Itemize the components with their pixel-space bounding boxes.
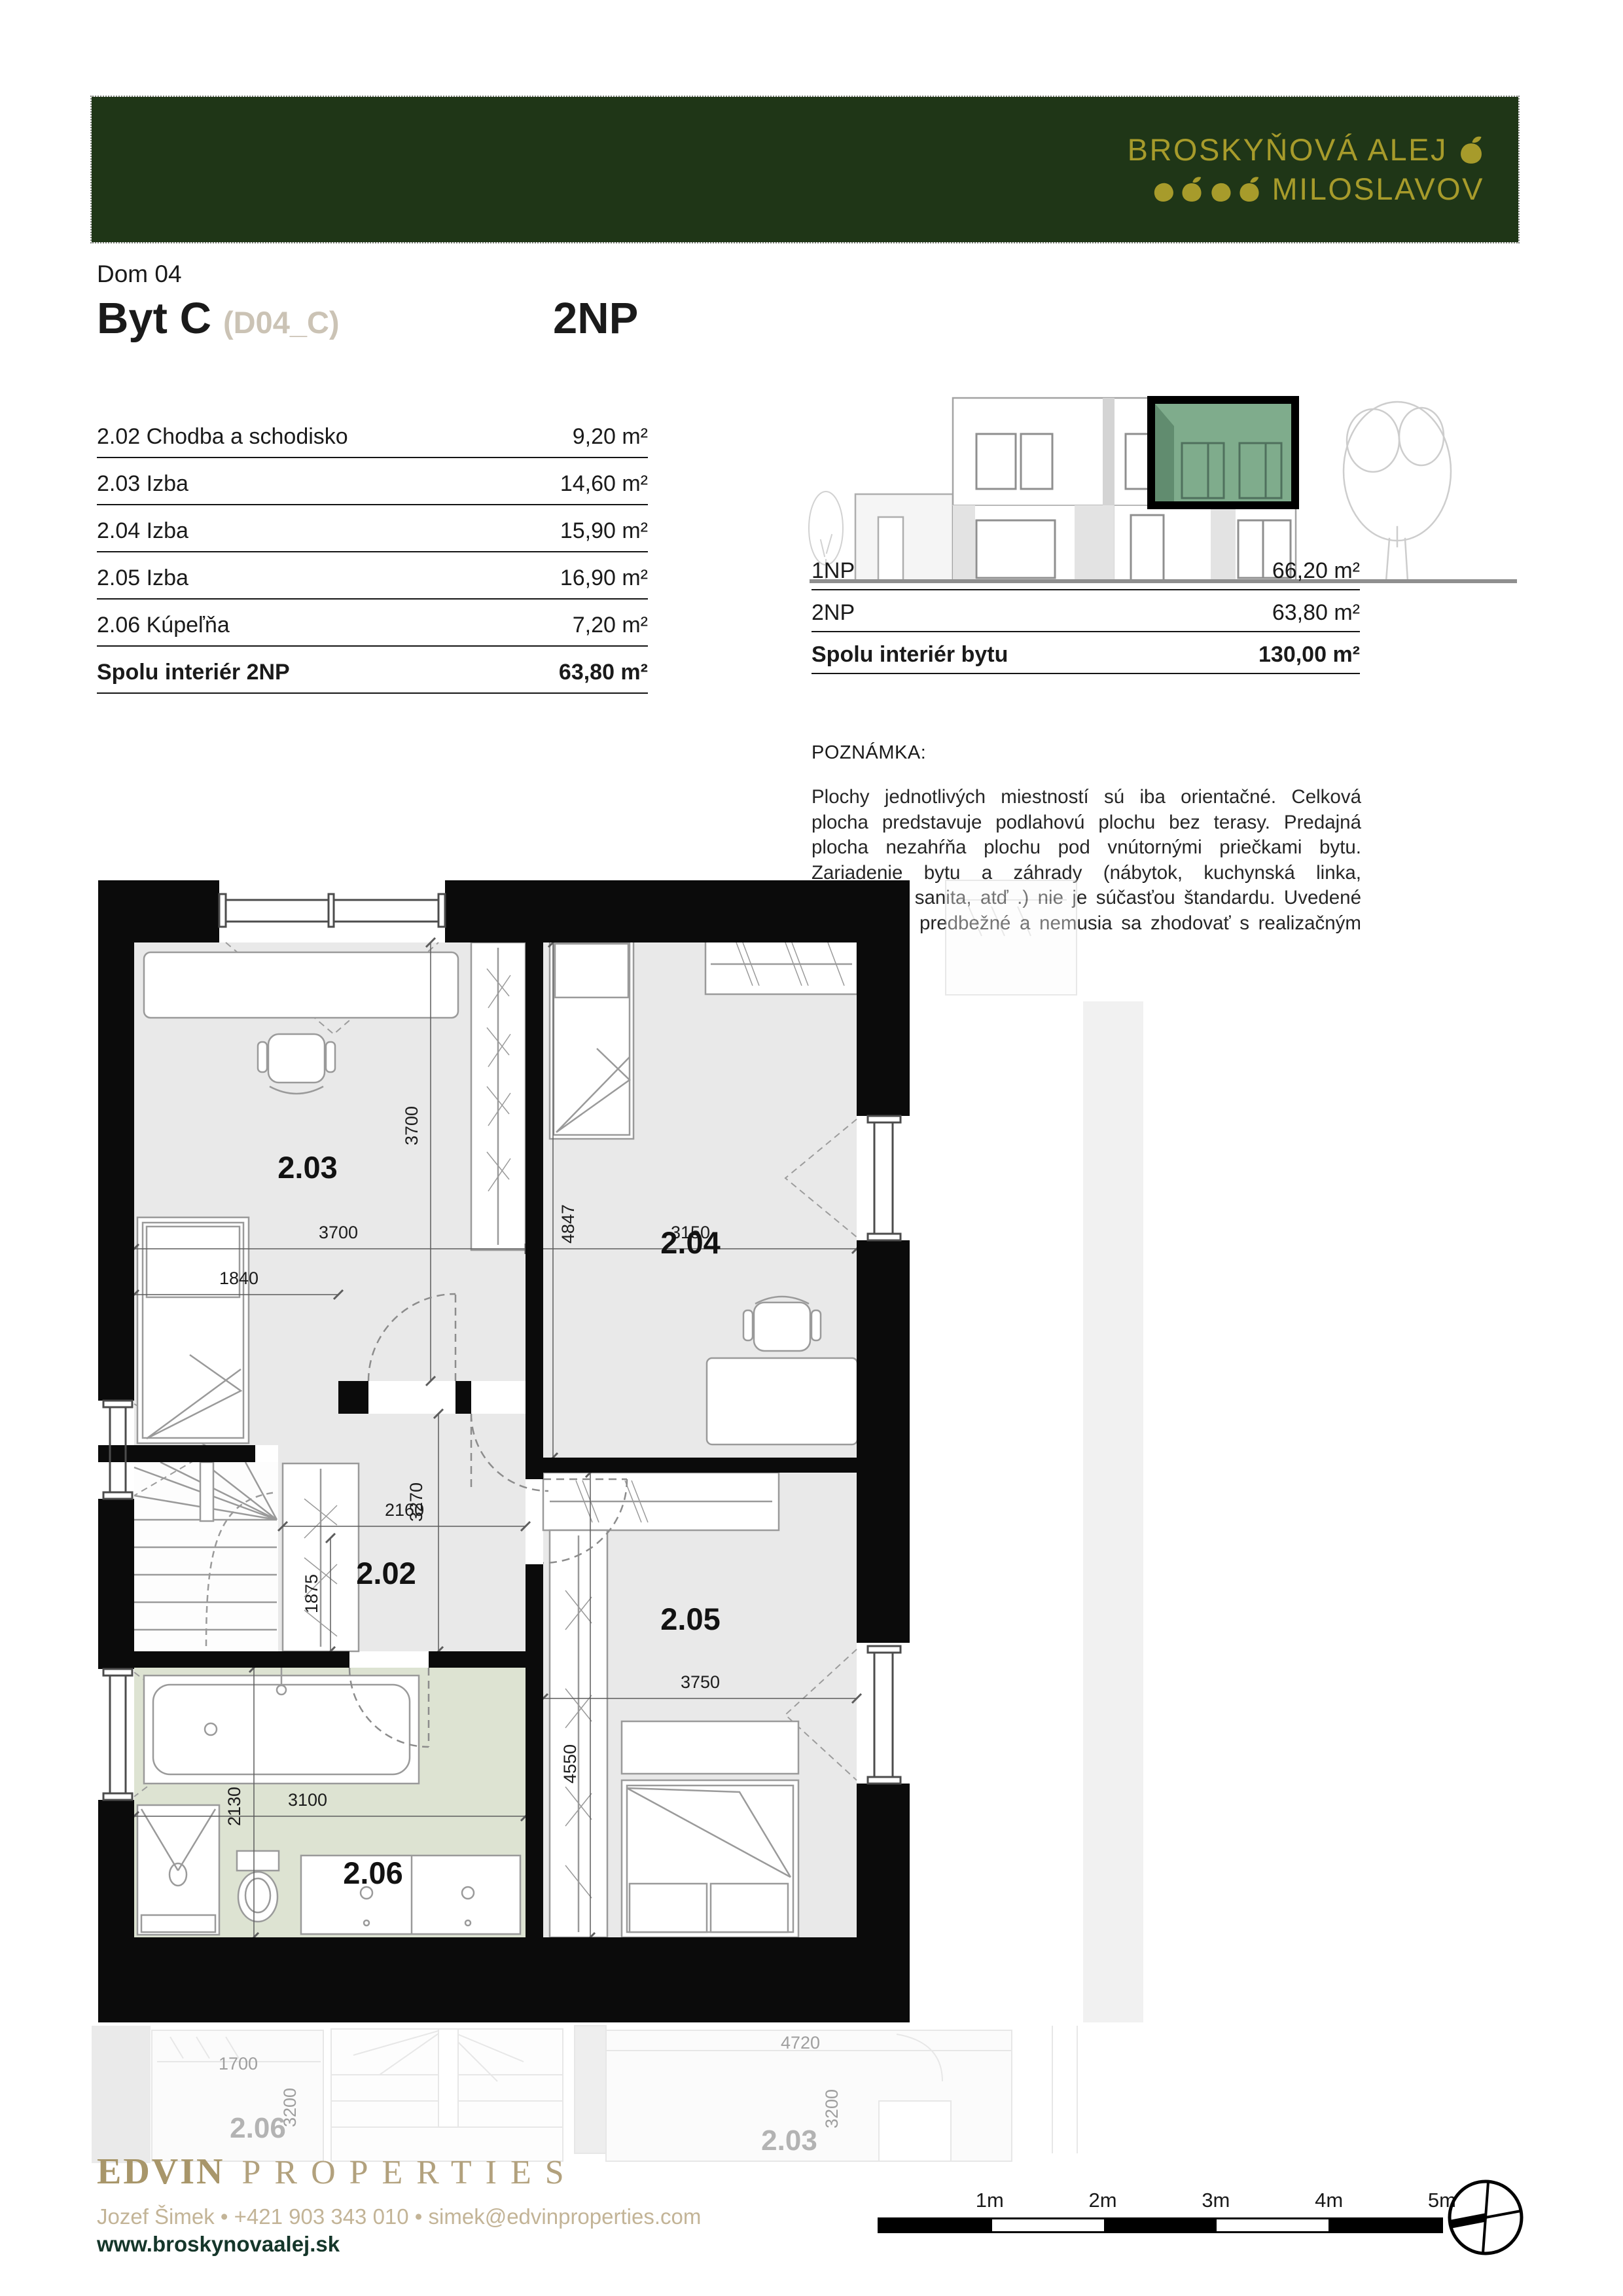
- room-number: 2.04: [660, 1225, 720, 1260]
- website-link[interactable]: www.broskynovaalej.sk: [97, 2232, 340, 2257]
- table-row: 1NP66,20 m²: [811, 548, 1360, 590]
- room-area: 14,60 m²: [560, 471, 648, 497]
- scale-bar-segments: [878, 2217, 1443, 2233]
- room-label: 2.05 Izba: [97, 565, 188, 591]
- floor-label: 1NP: [811, 558, 855, 584]
- contact-line: Jozef Šimek • +421 903 343 010 • simek@e…: [97, 2204, 701, 2229]
- scale-bar: 1m 2m 3m 4m 5m: [878, 2189, 1443, 2233]
- ghost-label: 1700: [219, 2054, 258, 2073]
- project-label: Dom 04: [97, 260, 182, 288]
- table-row: 2.03 Izba14,60 m²: [97, 458, 648, 505]
- scale-labels: 1m 2m 3m 4m 5m: [878, 2189, 1443, 2212]
- ghost-label: 3200: [822, 2089, 842, 2128]
- room-area: 16,90 m²: [560, 565, 648, 591]
- total-value: 130,00 m²: [1258, 642, 1360, 668]
- dimension-label: 4847: [558, 1204, 578, 1244]
- scale-label: 5m: [1343, 2189, 1456, 2212]
- total-value: 63,80 m²: [559, 660, 648, 685]
- room-area: 7,20 m²: [573, 613, 648, 638]
- logo: BROSKYŇOVÁ ALEJ MILOSLAVOV: [1128, 130, 1484, 209]
- table-total-row: Spolu interiér 2NP63,80 m²: [97, 647, 648, 694]
- room-label: 2.02 Chodba a schodisko: [97, 424, 348, 450]
- header-banner: BROSKYŇOVÁ ALEJ MILOSLAVOV: [92, 97, 1518, 242]
- room-area-table: 2.02 Chodba a schodisko9,20 m² 2.03 Izba…: [97, 411, 648, 694]
- floor-plan-2np: 3700315018403700484732702160187537504550…: [92, 870, 1165, 2296]
- dimension-label: 3100: [288, 1790, 327, 1810]
- room-label: 2.03 Izba: [97, 471, 188, 497]
- table-row: 2.02 Chodba a schodisko9,20 m²: [97, 411, 648, 458]
- north-compass-icon: [1445, 2177, 1526, 2258]
- dimension-label: 3700: [319, 1223, 358, 1242]
- room-number: 2.03: [277, 1150, 337, 1185]
- dimension-label: 4550: [560, 1744, 580, 1784]
- table-row: 2NP63,80 m²: [811, 590, 1360, 632]
- floor-area: 63,80 m²: [1272, 600, 1360, 626]
- note-heading: POZNÁMKA:: [811, 742, 1361, 764]
- ghost-label: 2.03: [761, 2125, 817, 2157]
- room-number: 2.05: [660, 1602, 720, 1636]
- floor-title: 2NP: [553, 293, 638, 344]
- table-total-row: Spolu interiér bytu130,00 m²: [811, 632, 1360, 674]
- dimension-label: 3700: [402, 1106, 421, 1145]
- peach-row-icon: [1151, 175, 1261, 203]
- dimension-label: 1840: [219, 1268, 259, 1288]
- scale-label: 4m: [1230, 2189, 1343, 2212]
- highlighted-unit: [1151, 400, 1295, 505]
- unit-code: (D04_C): [223, 305, 340, 340]
- room-label: 2.06 Kúpeľňa: [97, 613, 230, 638]
- brand-rest: PROPERTIES: [241, 2153, 577, 2192]
- table-row: 2.04 Izba15,90 m²: [97, 505, 648, 552]
- ghost-label: 4720: [781, 2033, 820, 2053]
- ghost-label: 2.06: [230, 2112, 286, 2144]
- floor-label: 2NP: [811, 600, 855, 626]
- brand-logo: EDVIN PROPERTIES: [97, 2151, 578, 2193]
- floor-summary-table: 1NP66,20 m² 2NP63,80 m² Spolu interiér b…: [811, 548, 1360, 674]
- peach-icon: [1458, 135, 1484, 165]
- room-area: 9,20 m²: [573, 424, 648, 450]
- logo-line2: MILOSLAVOV: [1272, 170, 1484, 209]
- total-label: Spolu interiér 2NP: [97, 660, 290, 685]
- room-number: 2.06: [343, 1856, 402, 1890]
- room-area: 15,90 m²: [560, 518, 648, 544]
- brand-bold: EDVIN: [97, 2151, 224, 2193]
- title-row: Byt C(D04_C) 2NP: [97, 293, 751, 352]
- dimension-label: 3750: [681, 1672, 720, 1692]
- table-row: 2.05 Izba16,90 m²: [97, 552, 648, 600]
- table-row: 2.06 Kúpeľňa7,20 m²: [97, 600, 648, 647]
- total-label: Spolu interiér bytu: [811, 642, 1008, 668]
- dimension-label: 2160: [385, 1500, 424, 1520]
- scale-label: 1m: [891, 2189, 1004, 2212]
- dimension-label: 1875: [302, 1574, 321, 1613]
- scale-label: 2m: [1004, 2189, 1117, 2212]
- scale-label: 3m: [1117, 2189, 1230, 2212]
- room-label: 2.04 Izba: [97, 518, 188, 544]
- room-number: 2.02: [356, 1556, 416, 1590]
- floor-area: 66,20 m²: [1272, 558, 1360, 584]
- dimension-label: 2130: [224, 1787, 244, 1826]
- logo-line1: BROSKYŇOVÁ ALEJ: [1128, 130, 1448, 170]
- unit-title: Byt C: [97, 293, 211, 344]
